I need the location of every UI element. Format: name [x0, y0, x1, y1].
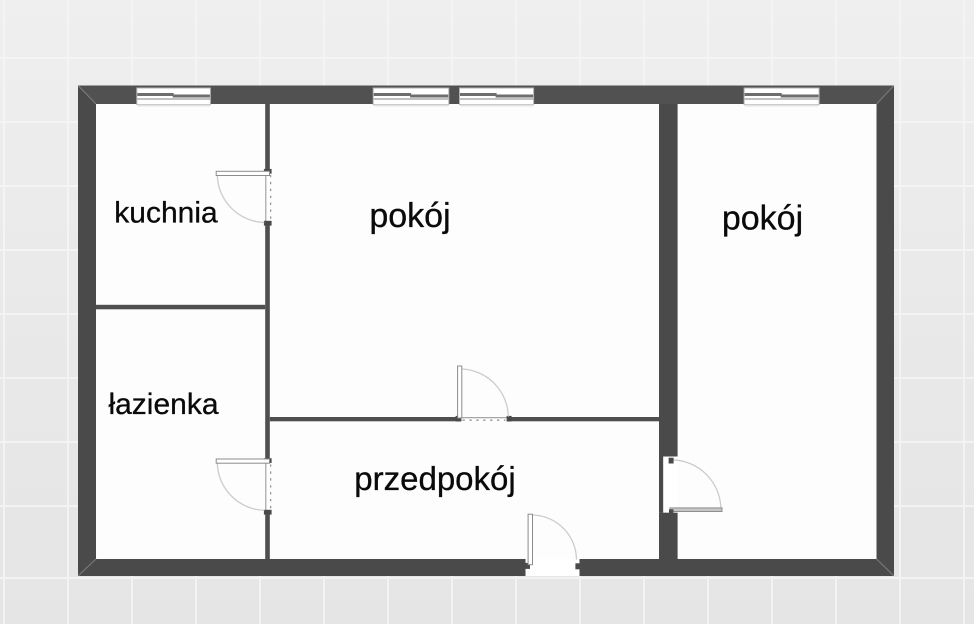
svg-text:łazienka: łazienka	[108, 388, 218, 421]
svg-text:kuchnia: kuchnia	[114, 197, 218, 230]
svg-text:przedpokój: przedpokój	[354, 460, 515, 497]
svg-text:pokój: pokój	[722, 200, 803, 238]
svg-text:pokój: pokój	[369, 197, 450, 235]
